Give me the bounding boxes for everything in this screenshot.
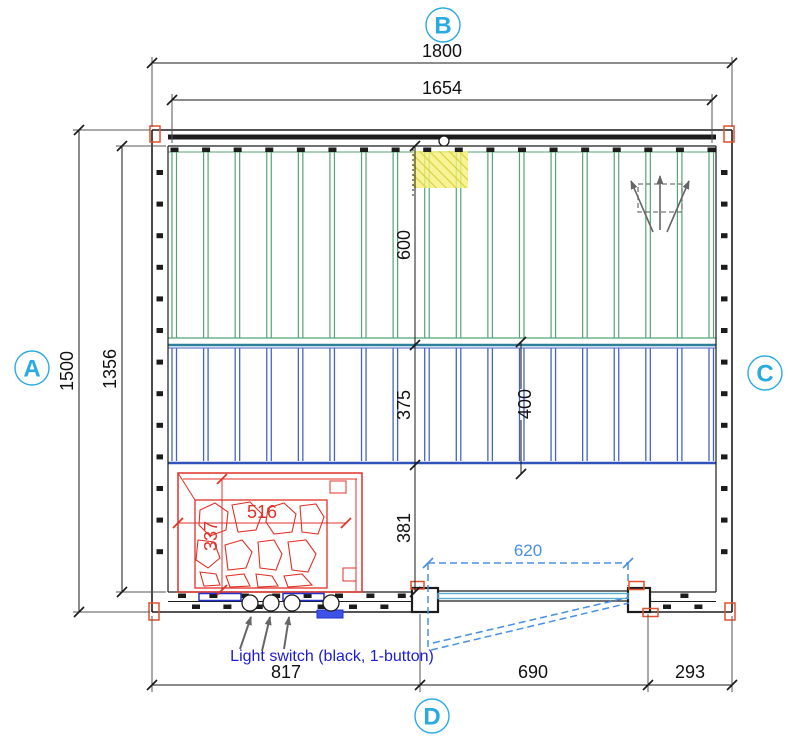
heater-bevel [178, 473, 195, 500]
sauna-floor-plan: 1800 1654 1500 1356 600 375 400 381 817 … [0, 0, 788, 746]
wall-clip-left [157, 296, 164, 301]
board-clip [676, 148, 684, 153]
wall-clip-right [721, 360, 728, 365]
dim-inner-depth: 1356 [100, 349, 120, 389]
wall-clip-right [721, 296, 728, 301]
corner-marks [149, 126, 735, 620]
wall-clip-left [157, 518, 164, 523]
wall-clip-left [157, 486, 164, 491]
board-clip [297, 148, 305, 153]
wall-clip-left [157, 170, 164, 175]
board-clip [550, 148, 558, 153]
dim-heater-width: 516 [247, 502, 277, 522]
wall-clip-left [157, 202, 164, 207]
dim-lower-bench-total: 400 [515, 389, 535, 419]
dim-door-glass: 620 [514, 541, 542, 560]
direction-arrows-symbol [631, 176, 689, 232]
wall-clip-right [721, 202, 728, 207]
wall-clip-left [157, 328, 164, 333]
wall-clip-right [721, 549, 728, 554]
wall-clip-right [721, 423, 728, 428]
heater-detail-top [330, 481, 346, 493]
wall-clip-bottom [178, 594, 186, 599]
dim-bottom-right: 293 [675, 662, 705, 682]
wall-clip-left [157, 549, 164, 554]
dim-outer-depth: 1500 [57, 351, 77, 391]
board-clip [708, 148, 716, 153]
board-clip [613, 148, 621, 153]
board-clip [360, 148, 368, 153]
callout-arrow-1 [240, 617, 251, 649]
wall-clip-bottom [192, 605, 200, 610]
switch-button-2 [263, 595, 279, 611]
view-marker-letter: A [23, 356, 40, 383]
board-clip [234, 148, 242, 153]
view-marker-left: A [15, 351, 49, 385]
wall-clip-left [157, 233, 164, 238]
view-marker-bottom: D [415, 699, 449, 733]
highlight-hatch [413, 151, 468, 188]
floor-plan-canvas: 1800 1654 1500 1356 600 375 400 381 817 … [0, 0, 788, 746]
board-clip [644, 148, 652, 153]
wall-gland [323, 595, 339, 611]
board-clip [392, 148, 400, 153]
switch-button-1 [242, 595, 258, 611]
wall-clip-right [721, 265, 728, 270]
board-clip [518, 148, 526, 153]
dim-bottom-door: 690 [518, 662, 548, 682]
dim-inner-width: 1654 [422, 78, 462, 98]
view-marker-top: B [426, 8, 460, 42]
wall-clip-left [157, 423, 164, 428]
sensor-circle [439, 136, 449, 146]
door-glass [438, 594, 628, 599]
wall-clip-right [721, 486, 728, 491]
callout-arrow-2 [262, 617, 270, 651]
wall-clip-right [721, 328, 728, 333]
dim-upper-bench: 600 [394, 230, 414, 260]
door [412, 563, 650, 650]
view-marker-letter: C [756, 361, 773, 388]
door-swing-leaf-2 [433, 598, 628, 644]
wall-clip-right [721, 233, 728, 238]
board-clip [202, 148, 210, 153]
bench-boards [168, 152, 716, 463]
wall-clip-left [157, 265, 164, 270]
view-marker-right: C [748, 356, 782, 390]
wall-clip-bottom [398, 594, 406, 599]
wall-clip-bottom [694, 605, 702, 610]
view-marker-letter: D [423, 704, 440, 731]
board-clip [265, 148, 273, 153]
wall-clip-right [721, 170, 728, 175]
light-switch-callout [240, 617, 289, 651]
wall-clip-right [721, 518, 728, 523]
board-clip [581, 148, 589, 153]
wall-clip-right [721, 391, 728, 396]
callout-arrow-3 [284, 617, 289, 649]
view-marker-letter: B [434, 13, 451, 40]
board-clip [328, 148, 336, 153]
door-swing-leaf-1 [431, 603, 629, 650]
wall-clip-left [157, 360, 164, 365]
board-clip [486, 148, 494, 153]
led-strip-left [199, 594, 241, 601]
arrow-up-left-icon [631, 181, 653, 232]
heater-detail-side [343, 568, 356, 581]
wall-clip-bottom [349, 605, 357, 610]
wall-clip-left [157, 391, 164, 396]
wall-clip-bottom [366, 594, 374, 599]
highlight-area [413, 149, 468, 196]
wall-clip-bottom [380, 605, 388, 610]
wall-clip-right [721, 454, 728, 459]
board-clip [455, 148, 463, 153]
light-switch-label: Light switch (black, 1-button) [230, 648, 434, 665]
switch-button-3 [284, 595, 300, 611]
wall-clip-left [157, 454, 164, 459]
wall-clip-bottom [223, 605, 231, 610]
board-clip [423, 148, 431, 153]
board-clip [171, 148, 179, 153]
wall-clip-bottom [680, 594, 688, 599]
dim-floor-gap: 381 [394, 513, 414, 543]
dim-lower-bench-boards: 375 [394, 390, 414, 420]
wall-clip-bottom [663, 605, 671, 610]
dim-heater-depth: 337 [201, 521, 221, 551]
walls [152, 130, 732, 612]
dim-outer-width: 1800 [422, 41, 462, 61]
dim-bottom-left: 817 [271, 662, 301, 682]
